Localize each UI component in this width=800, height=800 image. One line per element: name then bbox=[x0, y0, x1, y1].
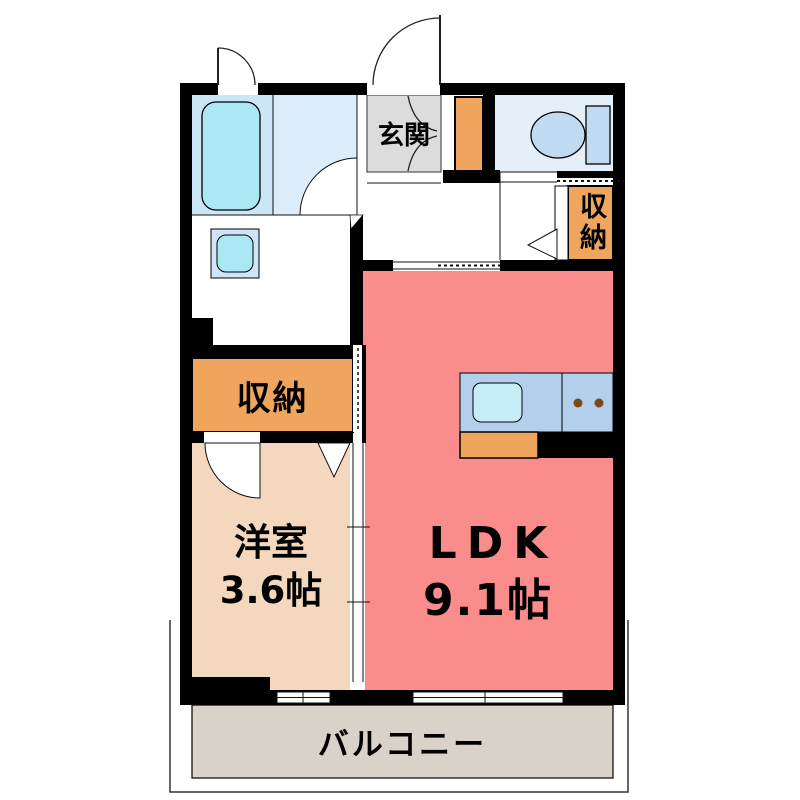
wall-above-storage bbox=[192, 345, 355, 358]
shoe-cabinet bbox=[455, 97, 483, 171]
wall-ldk-top-b bbox=[500, 260, 625, 271]
kitchen-cabinet bbox=[460, 432, 538, 458]
storage-upper bbox=[568, 186, 613, 260]
entrance-floor bbox=[367, 95, 441, 172]
wall-bottom-left bbox=[180, 677, 270, 705]
wall-left bbox=[180, 83, 192, 705]
toilet-tank bbox=[586, 106, 610, 164]
floor-plan-drawing bbox=[0, 0, 800, 800]
wall-mid-vertical bbox=[350, 215, 363, 345]
stove-burner-left bbox=[574, 399, 583, 408]
wall-right bbox=[613, 83, 625, 705]
entrance-door-opening bbox=[367, 83, 440, 95]
washbasin-sink bbox=[217, 235, 253, 272]
wall-thin-ldk-left bbox=[362, 345, 366, 443]
wall-top-mid bbox=[258, 83, 367, 95]
storage-side-opening bbox=[353, 345, 362, 432]
storage-lower bbox=[192, 358, 353, 432]
wall-cabinet-side bbox=[483, 95, 495, 183]
toilet-bowl bbox=[531, 112, 585, 158]
ldk-floor bbox=[363, 271, 613, 692]
bathtub bbox=[202, 102, 260, 210]
western-room-floor bbox=[192, 443, 350, 690]
wall-under-cabinet bbox=[443, 170, 500, 183]
wall-kitchen-return bbox=[538, 432, 613, 458]
wall-ldk-top-a bbox=[363, 260, 393, 271]
kitchen-sink bbox=[473, 383, 522, 422]
balcony-floor bbox=[192, 705, 613, 778]
floor-plan: 玄関 収納 収納 洋室 3.6帖 LDK 9.1帖 バルコニー bbox=[0, 0, 800, 800]
stove-burner-right bbox=[595, 399, 604, 408]
wall-pipe-space bbox=[180, 318, 213, 345]
western-room-door-opening bbox=[204, 432, 260, 443]
windows bbox=[277, 692, 563, 703]
wall-top-right bbox=[440, 83, 625, 95]
bathroom-door-opening bbox=[218, 83, 258, 95]
